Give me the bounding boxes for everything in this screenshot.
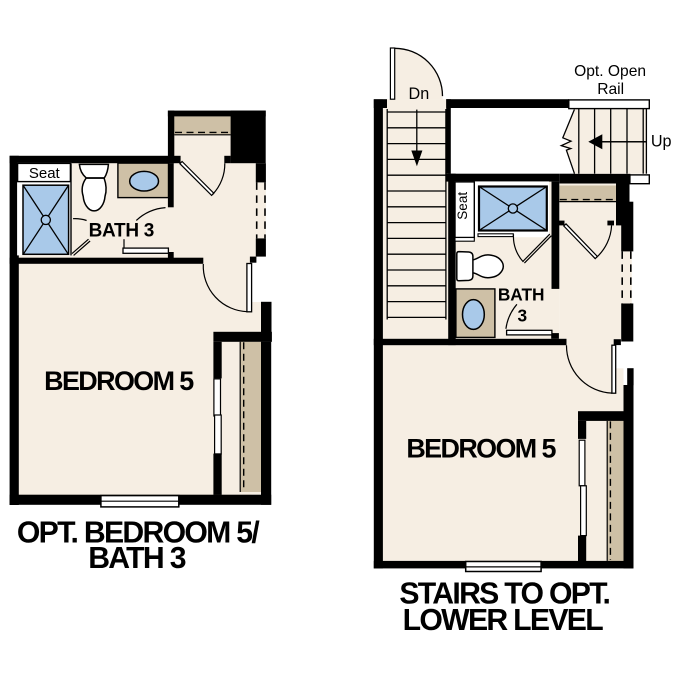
svg-text:3: 3 [517, 306, 527, 326]
svg-text:BATH 3: BATH 3 [88, 542, 185, 575]
svg-text:Dn: Dn [409, 85, 430, 103]
svg-text:Seat: Seat [455, 192, 470, 220]
svg-text:BEDROOM 5: BEDROOM 5 [44, 366, 194, 396]
svg-text:Rail: Rail [597, 81, 624, 98]
svg-text:Opt. Open: Opt. Open [574, 63, 646, 80]
svg-text:Up: Up [651, 132, 672, 150]
svg-text:BATH: BATH [498, 284, 545, 304]
svg-text:BATH 3: BATH 3 [89, 221, 154, 242]
svg-text:LOWER LEVEL: LOWER LEVEL [403, 604, 604, 637]
svg-text:BEDROOM 5: BEDROOM 5 [406, 434, 556, 464]
svg-text:Seat: Seat [29, 165, 61, 182]
